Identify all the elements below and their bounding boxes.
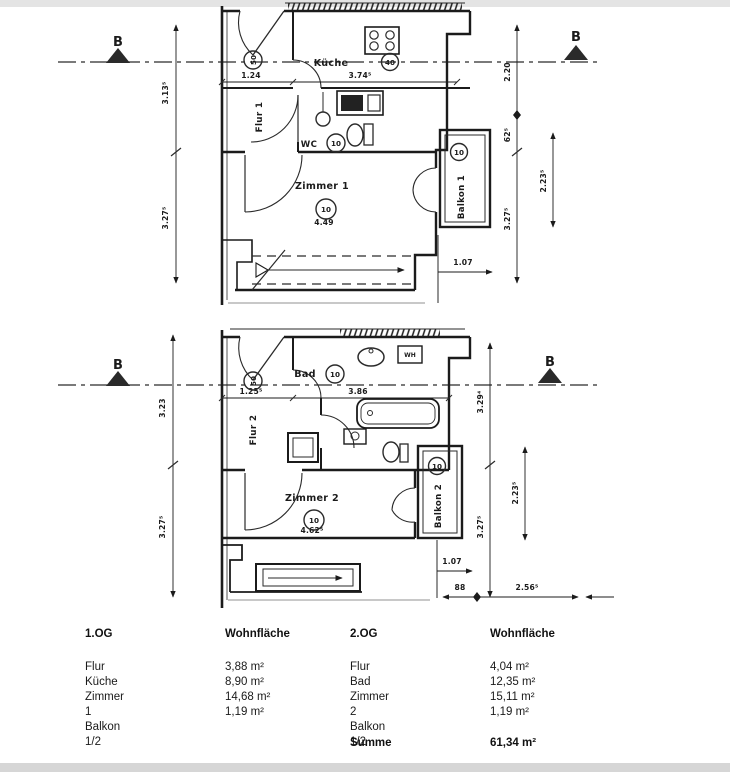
dim-bottom-large: 2.56⁵ [515, 583, 538, 592]
dimension-chain-right: 3.29⁴ 3.27⁵ 2.23⁵ [476, 343, 525, 597]
boiler-grille [341, 95, 363, 111]
row-label: Zimmer 2 [350, 690, 389, 720]
summe-value: 61,34 m² [490, 737, 536, 749]
header-wohnflaeche-right: Wohnfläche [490, 628, 555, 640]
dim-kueche: 3.74⁵ [348, 71, 371, 80]
dim-right-lower: 3.27⁵ [503, 207, 512, 230]
dim-bottom-small: 88 [455, 583, 466, 592]
row-value: 14,68 m² [225, 690, 270, 705]
row-value: 3,88 m² [225, 660, 270, 675]
section-triangle-right-icon [564, 45, 588, 60]
hatched-wall [288, 3, 462, 11]
row-value: 15,11 m² [490, 690, 535, 705]
row-value: 4,04 m² [490, 660, 535, 675]
row-label: Bad [350, 675, 389, 690]
toilet-icon [383, 442, 399, 462]
section-marker-b-left: B [113, 35, 123, 50]
bad-door-arc [321, 415, 354, 448]
sink-icon [358, 348, 384, 366]
small-sink-icon [344, 429, 366, 444]
summe-label: Summe [350, 737, 392, 749]
dimension-chain-left: 3.23 3.27⁵ [158, 335, 178, 597]
staircase [252, 250, 412, 290]
header-1og: 1.OG [85, 628, 112, 640]
dim-left-lower: 3.27⁵ [161, 206, 170, 229]
row-value: 1,19 m² [490, 705, 535, 720]
table-column-2og: 2.OG Flur Bad Zimmer 2 Balkon 1/2 Summe [350, 628, 377, 640]
entrance-door-leaf [253, 11, 284, 55]
dim-left-lower: 3.27⁵ [158, 515, 167, 538]
walls [222, 3, 470, 305]
scanned-floorplan-page: B B 3.13⁵ 3.27⁵ [0, 0, 730, 772]
entrance-door-arc [239, 337, 253, 380]
dim-balkon-depth: 1.07 [442, 557, 462, 566]
kueche-circle-number: 40 [385, 58, 395, 67]
section-triangle-right-icon [538, 368, 562, 383]
bad-label: Bad [294, 369, 316, 380]
bad-circle-number: 10 [330, 370, 340, 379]
dimension-chain-left: 3.13⁵ 3.27⁵ [161, 25, 181, 283]
section-triangle-left-icon [106, 371, 130, 386]
dim-vestibule: 1.24 [241, 71, 261, 80]
balkon-circle-number: 10 [432, 462, 442, 471]
zimmer-label: Zimmer 1 [295, 181, 349, 192]
staircase [256, 564, 360, 591]
row-value: 1,19 m² [225, 705, 270, 720]
plan-1og: B B 3.13⁵ 3.27⁵ [58, 3, 600, 305]
bottom-dimensions: 88 2.56⁵ [443, 583, 614, 602]
table-column-1og-area: Wohnfläche 3,88 m² 8,90 m² 14,68 m² 1,19… [225, 628, 290, 640]
row-label: Flur [350, 660, 389, 675]
dim-right-upper: 2.20 [503, 62, 512, 82]
table-column-1og: 1.OG Flur Küche Zimmer 1 Balkon 1/2 [85, 628, 112, 640]
dim-balkon-height: 2.23⁵ [539, 169, 548, 192]
row-label: Küche [85, 675, 124, 690]
row-label: Flur [85, 660, 124, 675]
washer-box-label: WH [404, 352, 416, 359]
row-label: Balkon 1/2 [85, 720, 124, 750]
table-column-2og-area: Wohnfläche 4,04 m² 12,35 m² 15,11 m² 1,1… [490, 628, 555, 640]
dim-balkon-height: 2.23⁵ [511, 481, 520, 504]
interior-dimensions: 1.24 3.74⁵ 4.49 [219, 71, 460, 227]
dim-right-upper: 3.29⁴ [476, 390, 485, 414]
plan-2og: B B 3.23 3.27⁵ [58, 329, 614, 608]
wc-label: WC [301, 140, 317, 150]
section-marker-b-left: B [113, 358, 123, 373]
dim-left-upper: 3.13⁵ [161, 81, 170, 104]
header-2og: 2.OG [350, 628, 377, 640]
section-marker-b-right: B [571, 30, 581, 45]
entrance-door-arc [239, 11, 253, 55]
entry-circle-number: 50 [249, 376, 258, 386]
section-marker-b-right: B [545, 355, 555, 370]
dim-left-upper: 3.23 [158, 398, 167, 418]
kueche-label: Küche [314, 58, 349, 69]
balkon-label: Balkon 2 [434, 484, 444, 528]
balkon-circle-number: 10 [454, 148, 464, 157]
scan-edge-bottom [0, 763, 730, 772]
floorplan-drawing: B B 3.13⁵ 3.27⁵ [0, 0, 730, 620]
entry-circle-number: 50 [249, 55, 258, 65]
stove-icon [365, 27, 399, 54]
balkon-1: 10 Balkon 1 [438, 130, 490, 303]
fixtures [316, 27, 399, 146]
balkon-label: Balkon 1 [457, 175, 467, 219]
flur-label: Flur 1 [255, 102, 265, 133]
balcony-french-door-arcs [392, 488, 415, 522]
dim-right-mid: 62⁵ [503, 128, 512, 143]
dim-right-lower: 3.27⁵ [476, 515, 485, 538]
zimmer-circle-number: 10 [321, 205, 331, 214]
balcony-french-door-arcs [413, 168, 436, 212]
dimension-chain-right: 2.20 62⁵ 3.27⁵ 2.23⁵ [503, 25, 553, 283]
dim-bad: 3.86 [348, 387, 368, 396]
zimmer-door-arc [245, 155, 302, 212]
header-wohnflaeche-left: Wohnfläche [225, 628, 290, 640]
row-label: Zimmer 1 [85, 690, 124, 720]
sink-icon [316, 112, 330, 126]
hatched-wall [340, 329, 440, 337]
wc-circle-number: 10 [331, 139, 341, 148]
row-value: 8,90 m² [225, 675, 270, 690]
area-table: 1.OG Flur Küche Zimmer 1 Balkon 1/2 Wohn… [85, 628, 645, 758]
section-triangle-left-icon [106, 48, 130, 63]
dim-balkon-depth: 1.07 [453, 258, 473, 267]
toilet-icon [347, 124, 363, 146]
fixtures: WH [288, 346, 439, 462]
zimmer-label: Zimmer 2 [285, 493, 339, 504]
flur-label: Flur 2 [249, 415, 259, 446]
zimmer-circle-number: 10 [309, 516, 319, 525]
row-value: 12,35 m² [490, 675, 535, 690]
